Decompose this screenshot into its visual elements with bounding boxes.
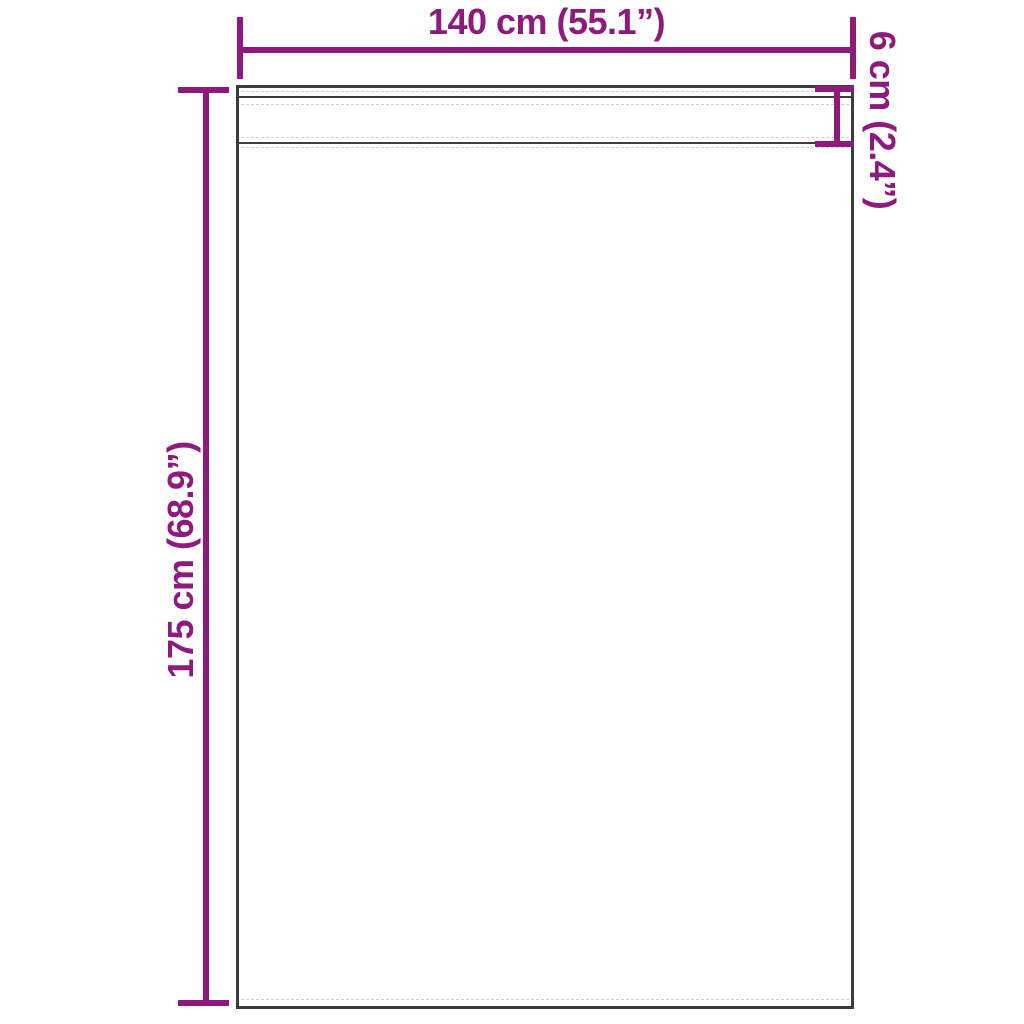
stitch-line: [241, 147, 849, 148]
stitch-line: [241, 91, 849, 92]
header-dimension-line: [834, 87, 840, 147]
height-dimension-top-tick: [178, 87, 229, 93]
header-dimension-label: 6 cm (2.4”): [861, 31, 903, 210]
height-dimension-line: [203, 87, 209, 1006]
width-dimension-label: 140 cm (55.1”): [240, 1, 853, 43]
curtain-top-seam-line: [239, 96, 851, 98]
curtain-panel: [236, 85, 854, 1009]
stitch-line: [241, 104, 849, 105]
width-dimension-line: [240, 47, 853, 53]
hem-stitch-line: [241, 999, 849, 1000]
width-dimension-right-tick: [850, 17, 856, 79]
stitch-line: [241, 137, 849, 138]
height-dimension-label: 175 cm (68.9”): [160, 441, 202, 678]
width-dimension-left-tick: [237, 17, 243, 79]
header-dimension-top-tick: [815, 86, 854, 92]
height-dimension-bottom-tick: [178, 1000, 229, 1006]
product-dimension-diagram: 140 cm (55.1”) 175 cm (68.9”) 6 cm (2.4”…: [0, 0, 1024, 1024]
header-dimension-bottom-tick: [815, 141, 854, 147]
curtain-header-bottom-line: [239, 142, 851, 144]
